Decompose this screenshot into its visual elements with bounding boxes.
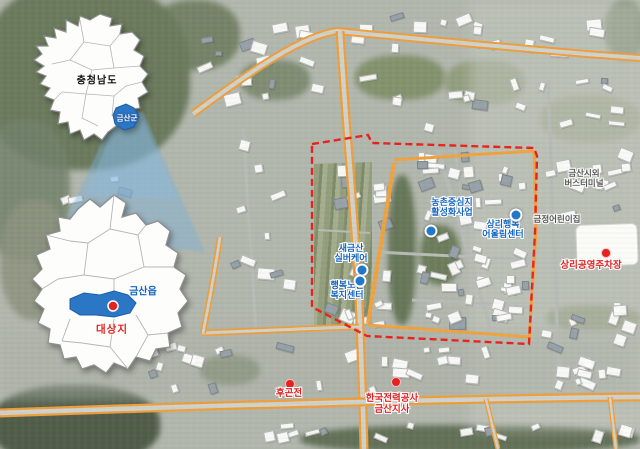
province-name-label: 충청남도 <box>77 72 118 87</box>
facility-label: 상리행복 어울림센터 <box>482 219 523 240</box>
facility-label: 농촌중심지 활성화사업 <box>431 197 472 218</box>
county-inset-map <box>18 183 213 383</box>
facility-marker-icon <box>425 225 438 238</box>
site-marker-icon <box>108 301 118 311</box>
town-label: 금산읍 <box>129 283 157 298</box>
poi-label-line: 상리공영주차장 <box>560 261 621 272</box>
facility-label-line: 실버케어 <box>334 253 367 263</box>
place-label: 금산시외 버스터미널 <box>564 169 603 189</box>
poi-marker-icon <box>601 248 611 258</box>
poi-label: 상리공영주차장 <box>560 261 621 272</box>
aerial-map: 농촌중심지 활성화사업 상리행복 어울림센터 새금산 실버케어 행복노인 복지센… <box>0 0 640 449</box>
facility-marker-icon <box>510 209 523 222</box>
place-label: 금정어린이집 <box>534 215 581 225</box>
facility-label-line: 어울림센터 <box>482 229 523 239</box>
facility-label-line: 농촌중심지 <box>431 197 472 207</box>
poi-label-line: 금산지사 <box>366 405 418 416</box>
place-label-line: 금정어린이집 <box>534 215 581 225</box>
facility-label: 새금산 실버케어 <box>334 243 367 264</box>
place-label-line: 버스터미널 <box>564 179 603 189</box>
facility-label-line: 활성화사업 <box>431 207 472 217</box>
province-highlight-label: 금산군 <box>117 113 138 124</box>
poi-marker-icon <box>391 377 401 387</box>
facility-label-line: 새금산 <box>334 243 367 253</box>
county-site-district <box>70 291 136 317</box>
poi-label: 한국전력공사 금산지사 <box>366 394 418 416</box>
poi-label: 후곤전 <box>276 389 302 400</box>
facility-label-line: 복지센터 <box>330 290 363 300</box>
site-label: 대상지 <box>96 322 128 337</box>
facility-marker-icon <box>354 275 367 288</box>
poi-label-line: 후곤전 <box>276 389 302 400</box>
